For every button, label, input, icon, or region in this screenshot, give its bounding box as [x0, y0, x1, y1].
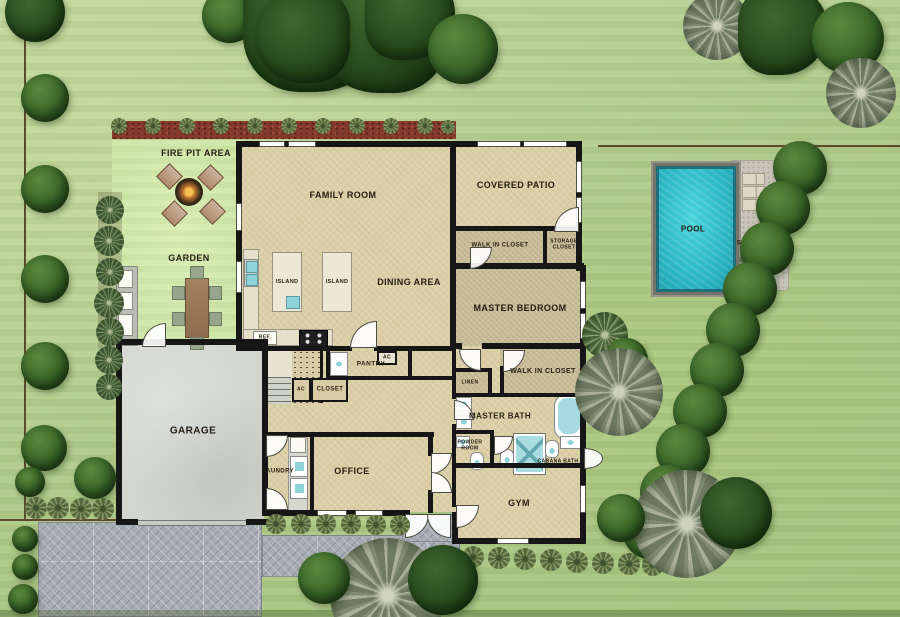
linen-label: LINEN	[462, 380, 479, 386]
window	[524, 142, 566, 146]
bush	[341, 514, 361, 534]
window	[577, 162, 581, 192]
window	[478, 142, 520, 146]
shower	[514, 434, 545, 474]
kitchen-sink	[246, 261, 258, 273]
wall	[428, 490, 433, 513]
shrub	[12, 554, 38, 580]
hedge-bush	[349, 118, 365, 134]
round-tree	[5, 0, 65, 42]
fence	[598, 145, 900, 147]
closet-label: CLOSET	[317, 387, 344, 394]
shrub	[8, 584, 38, 614]
laundry-cabinet	[290, 437, 306, 453]
tropical-plant	[96, 318, 124, 346]
fire-pit	[175, 178, 203, 206]
garden-chair	[209, 286, 222, 300]
wall	[246, 519, 268, 525]
hedge-bush	[111, 118, 127, 134]
pantry-sink	[330, 352, 348, 376]
palm-tree	[826, 58, 896, 128]
garage-label: GARAGE	[170, 426, 216, 437]
walk-in-closet-lower-label: WALK IN CLOSET	[510, 368, 576, 376]
bush	[366, 515, 386, 535]
bush	[390, 515, 410, 535]
round-tree	[21, 425, 67, 471]
cabana-bath-label: CABANA BATH	[538, 459, 579, 465]
storage-closet-label: STORAGE CLOSET	[548, 239, 580, 251]
office-label: OFFICE	[334, 467, 369, 477]
round-tree	[597, 494, 645, 542]
toilet	[545, 440, 559, 458]
master-bedroom-label: MASTER BEDROOM	[473, 304, 566, 314]
garage-door	[138, 520, 246, 526]
window	[237, 204, 241, 230]
hedge-bush	[441, 120, 455, 134]
pool-lounger	[742, 173, 765, 185]
garden-chair	[172, 286, 185, 300]
palm-tree	[575, 348, 663, 436]
powder-room-label: POWDER ROOM	[453, 440, 487, 452]
bush	[540, 549, 562, 571]
tropical-plant	[95, 346, 123, 374]
hedge-bush	[417, 118, 433, 134]
site-plan: FIRE PIT AREA GARDEN	[0, 0, 900, 617]
bush	[70, 498, 92, 520]
bush	[266, 514, 286, 534]
walk-in-closet-upper-label: WALK IN CLOSET	[472, 243, 529, 250]
shrub	[12, 526, 38, 552]
wall	[452, 467, 456, 507]
round-tree	[21, 342, 69, 390]
ref-label: REF.	[259, 335, 271, 341]
window	[289, 142, 315, 146]
pool-label: POOL	[681, 226, 705, 235]
gym-label: GYM	[508, 499, 530, 509]
tropical-plant	[96, 196, 124, 224]
cabana-sink	[560, 436, 581, 449]
dryer	[290, 478, 308, 499]
island-label: ISLAND	[276, 279, 299, 285]
shrub	[15, 467, 45, 497]
ac-label: AC	[383, 355, 391, 361]
hedge-bush	[281, 118, 297, 134]
round-tree	[74, 457, 116, 499]
bush	[92, 498, 114, 520]
round-tree	[428, 14, 498, 84]
round-tree	[408, 545, 478, 615]
stair-landing	[266, 350, 293, 379]
wall	[452, 349, 456, 399]
garden-chair	[190, 266, 204, 279]
master-bath-label: MASTER BATH	[469, 413, 531, 422]
kitchen-sink	[246, 274, 258, 286]
hedge-bush	[247, 118, 263, 134]
window	[260, 142, 284, 146]
round-tree	[21, 255, 69, 303]
bush	[566, 551, 588, 573]
round-tree	[21, 165, 69, 213]
bush	[592, 552, 614, 574]
garden-table	[185, 278, 209, 338]
bush	[618, 553, 640, 575]
island-label: ISLAND	[326, 279, 349, 285]
hedge-bush	[179, 118, 195, 134]
wall	[326, 349, 330, 379]
hedge-bush	[145, 118, 161, 134]
driveway	[38, 522, 262, 617]
bush	[25, 497, 47, 519]
tropical-plant	[96, 258, 124, 286]
family-room-label: FAMILY ROOM	[310, 191, 377, 201]
wall	[236, 141, 242, 351]
hedge-bush	[315, 118, 331, 134]
fence	[0, 519, 126, 521]
round-tree	[700, 477, 772, 549]
wall	[452, 527, 456, 540]
ac-label: AC	[297, 387, 305, 393]
exterior-door-arc	[584, 448, 603, 469]
window	[581, 282, 585, 308]
laundry-label: LAUNDRY	[262, 469, 294, 476]
wall	[116, 519, 138, 525]
wall	[408, 349, 412, 379]
window	[237, 262, 241, 292]
pantry-label: PANTRY	[357, 360, 385, 367]
wall	[262, 346, 352, 351]
wall	[452, 393, 586, 397]
stove	[299, 330, 328, 347]
garden-label: GARDEN	[168, 254, 209, 264]
stairs	[266, 377, 291, 404]
tree-canopy	[255, 0, 350, 83]
wall	[310, 435, 314, 513]
wall	[450, 141, 456, 351]
bush	[47, 497, 69, 519]
bush	[291, 514, 311, 534]
tropical-plant	[94, 226, 124, 256]
window	[498, 539, 528, 543]
window	[581, 486, 585, 512]
wall	[482, 343, 586, 349]
round-tree	[298, 552, 350, 604]
tropical-plant	[96, 374, 122, 400]
garden-chair	[209, 312, 222, 326]
round-tree	[21, 74, 69, 122]
hedge-bush	[383, 118, 399, 134]
hedge-bush	[213, 118, 229, 134]
island-sink	[286, 296, 300, 309]
garden-chair	[172, 312, 185, 326]
dining-area-label: DINING AREA	[377, 278, 441, 288]
bush	[514, 548, 536, 570]
bush	[488, 547, 510, 569]
tropical-plant	[94, 288, 124, 318]
wall	[452, 430, 492, 434]
wall	[543, 226, 547, 268]
bush	[316, 514, 336, 534]
fire-pit-area-label: FIRE PIT AREA	[161, 149, 231, 159]
covered-patio-label: COVERED PATIO	[477, 181, 555, 191]
